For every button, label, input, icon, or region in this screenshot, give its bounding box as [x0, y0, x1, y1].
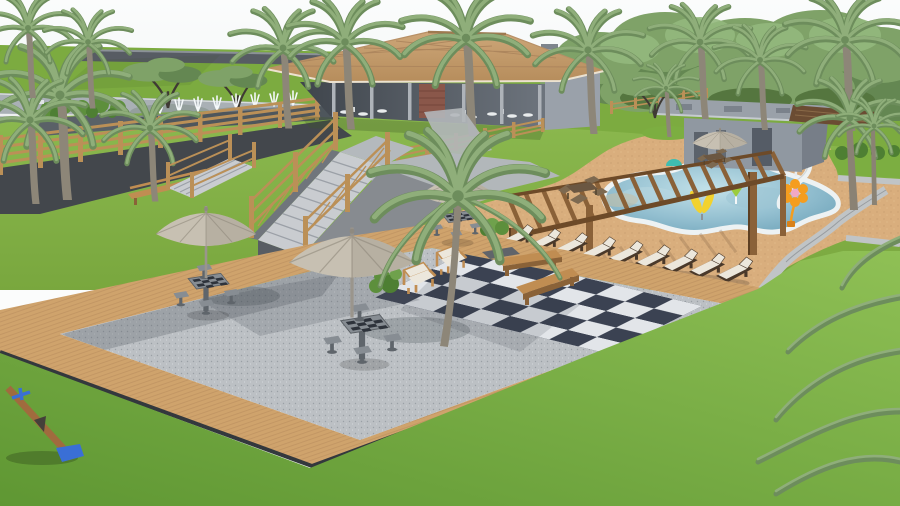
render-viewport — [0, 0, 900, 506]
leisure-area-render — [0, 0, 900, 506]
